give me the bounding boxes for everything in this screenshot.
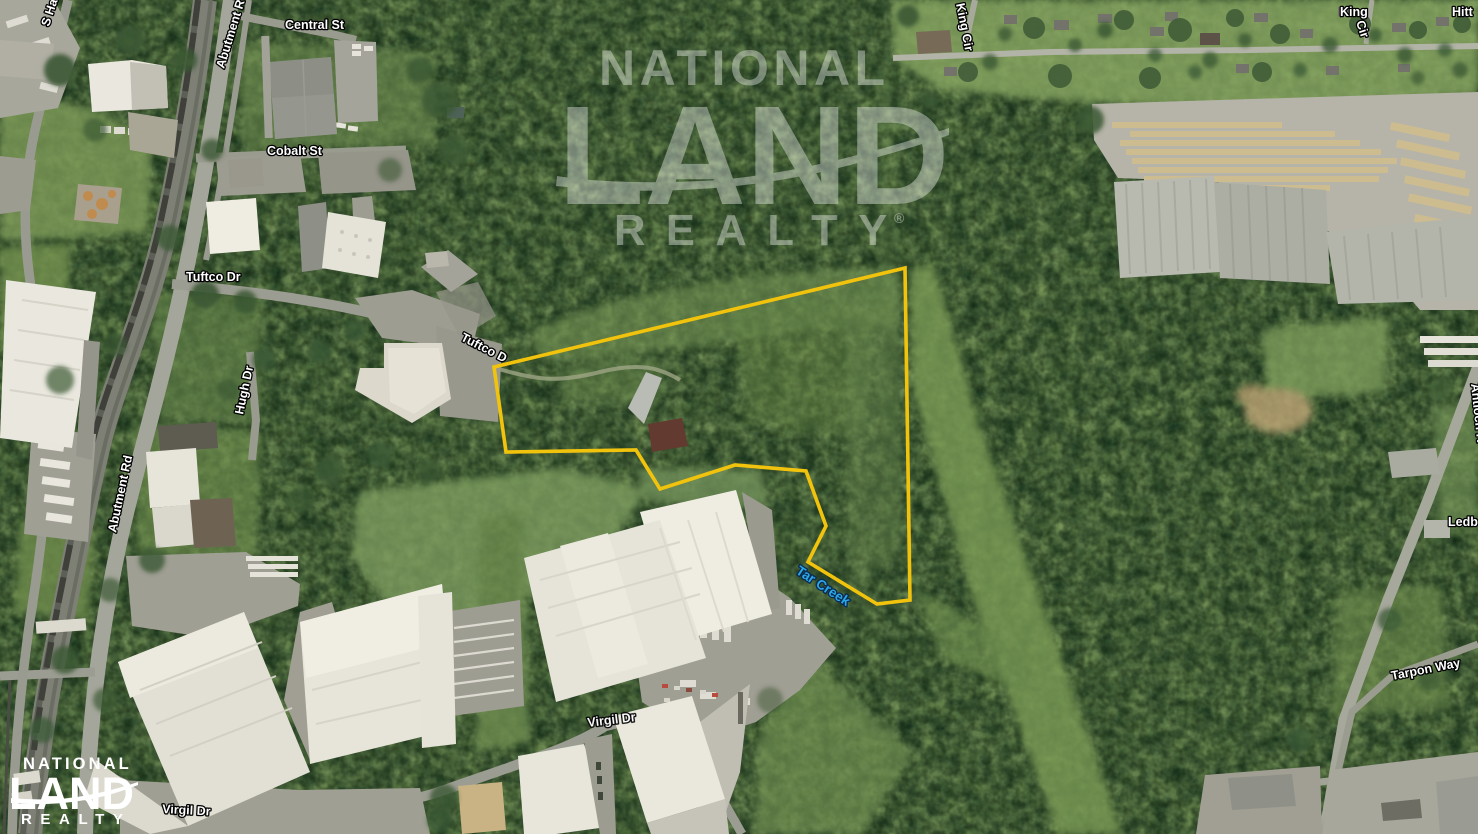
svg-text:REALTY: REALTY [21,811,132,828]
svg-text:®: ® [894,210,905,226]
svg-text:Hitt: Hitt [1452,5,1474,19]
svg-text:REALTY: REALTY [614,207,908,255]
svg-text:Central St: Central St [285,18,345,32]
svg-text:Tuftco Dr: Tuftco Dr [186,270,241,284]
svg-text:Cobalt St: Cobalt St [267,144,323,158]
svg-text:King: King [1340,5,1368,19]
svg-text:Virgil Dr: Virgil Dr [162,802,211,819]
svg-text:Ledb: Ledb [1448,515,1478,529]
